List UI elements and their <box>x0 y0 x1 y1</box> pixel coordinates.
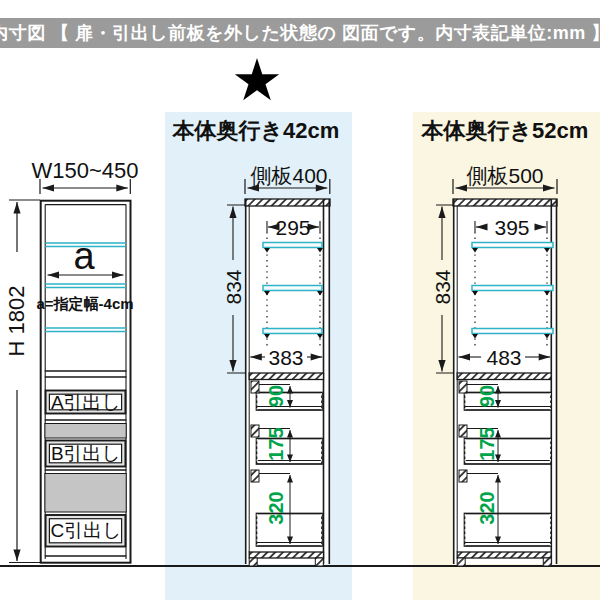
side-panel-400-label: 側板400 <box>250 165 327 186</box>
cabinet-interior <box>454 199 557 564</box>
drawer-height-175-label-52: 175 <box>477 427 497 460</box>
inner-depth-383-label: 383 <box>268 347 303 368</box>
side-panel-500-label: 側板500 <box>466 165 543 186</box>
fixed-shelf-hatch <box>249 373 323 380</box>
drawer-height-90-label-42: 90 <box>266 385 286 407</box>
front-leg <box>249 558 257 566</box>
front-width-label: W150~450 <box>31 160 138 182</box>
top-panel-hatch <box>453 199 557 206</box>
gray-band-2 <box>45 474 126 513</box>
drawer-height-320-label-42: 320 <box>266 491 286 524</box>
top-panel-hatch <box>245 199 330 206</box>
drawer-height-320-label-52: 320 <box>477 491 497 524</box>
bottom-panel-hatch <box>457 552 551 558</box>
shelf-width-note: a=指定幅-4cm <box>36 296 133 311</box>
star-icon: ★ <box>231 51 283 109</box>
fixed-shelf-hatch <box>457 373 551 380</box>
header-bar: 内寸図 【 扉・引出し前板を外した状態の 図面です。内寸表記単位:mm 】 <box>0 18 600 48</box>
inner-depth-483-label: 483 <box>486 347 521 368</box>
drawer-b-label: B引出し <box>51 444 121 463</box>
front-leg <box>457 558 465 566</box>
depth-42-heading: 本体奥行き42cm <box>173 120 340 142</box>
inner-height-834-label-52: 834 <box>432 269 453 304</box>
shelf-width-395-label: 395 <box>494 217 529 238</box>
inner-height-834-label-42: 834 <box>223 269 244 304</box>
page-title: 内寸図 【 扉・引出し前板を外した状態の 図面です。内寸表記単位:mm 】 <box>0 21 600 45</box>
depth-52-heading: 本体奥行き52cm <box>422 120 589 142</box>
drawer-a-label: A引出し <box>51 393 121 412</box>
shelf-width-295-label: 295 <box>275 217 310 238</box>
bottom-panel-hatch <box>249 552 323 558</box>
rear-leg <box>315 558 323 566</box>
shelf-width-variable-label: a <box>73 237 94 275</box>
drawer-c-label: C引出し <box>50 521 121 540</box>
front-view-drawing <box>0 160 150 572</box>
rear-leg <box>543 558 551 566</box>
front-height-dimension <box>9 200 40 563</box>
drawer-height-90-label-52: 90 <box>477 385 497 407</box>
gray-band-1 <box>45 424 126 439</box>
front-height-label: H 1802 <box>5 283 29 360</box>
drawer-height-175-label-42: 175 <box>266 427 286 460</box>
